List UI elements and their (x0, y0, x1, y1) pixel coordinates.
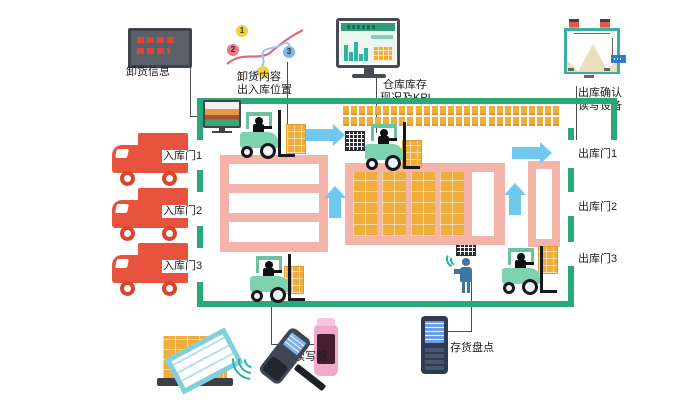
flow-arrow-right-icon (512, 147, 540, 159)
dock-monitor-base (212, 131, 232, 133)
kpi-monitor-icon (336, 18, 400, 68)
kpi-band (371, 35, 393, 39)
dock-monitor-icon (203, 100, 241, 128)
kpi-label-line1: 仓库库存 (383, 79, 427, 92)
forklift-icon (363, 122, 421, 172)
unload-info-label: 卸货信息 (126, 66, 170, 79)
gate-dimension-mark (584, 75, 594, 78)
flow-arrow-right-icon (305, 129, 333, 141)
unload-content-label-line1: 卸货内容 (237, 71, 281, 84)
warehouse-wall-left (197, 170, 203, 192)
shelf-rack-right (528, 161, 560, 247)
map-pin-1: 1 (236, 25, 248, 37)
stock-count-label: 存货盘点 (450, 342, 494, 355)
flow-arrow-up-icon (329, 198, 341, 218)
map-pin-3: 3 (283, 46, 295, 58)
warehouse-wall-right (568, 266, 574, 307)
forklift-mounted-reader-icon (314, 324, 338, 376)
shelf-rack-left (220, 155, 328, 252)
forklift-icon (500, 246, 558, 296)
worker-person-icon (458, 258, 474, 294)
kpi-pallet-grid (373, 47, 392, 61)
outbound-door-1-label: 出库门1 (578, 148, 617, 161)
kpi-monitor-screen (339, 21, 397, 65)
pallet-storage-group (416, 106, 486, 126)
kpi-bar (364, 48, 368, 61)
kpi-bar (354, 42, 358, 61)
led-text-row (137, 37, 177, 43)
connector-line (447, 331, 472, 332)
kpi-dashboard-header (341, 23, 395, 31)
kpi-bar (349, 52, 353, 61)
gate-dimension-mark (568, 68, 574, 71)
monitor-base (352, 74, 386, 78)
pallet-storage-group (489, 106, 559, 126)
forklift-icon (248, 254, 306, 304)
warehouse-wall-right (568, 216, 574, 242)
warehouse-wall-topright (611, 98, 617, 140)
kpi-bar (359, 54, 363, 61)
warehouse-wall-left (197, 282, 203, 307)
inbound-door-2-label: 入库门2 (162, 205, 203, 218)
shelf-rack-center (345, 163, 505, 245)
led-text-row (137, 48, 170, 54)
outbound-door-3-label: 出库门3 (578, 253, 617, 266)
map-pin-2: 2 (227, 44, 239, 56)
connector-line (190, 68, 191, 116)
forklift-icon (238, 110, 296, 160)
kpi-dashboard-body (341, 32, 395, 63)
led-display-icon (128, 28, 192, 68)
warehouse-wall-top (197, 98, 617, 104)
inbound-door-3-label: 入库门3 (162, 260, 203, 273)
inbound-door-1-label: 入库门1 (162, 150, 203, 163)
warehouse-rfid-flow-diagram: 卸货信息 1 2 3 卸货内容 出入库位置 仓库库存 现况及KPI (0, 0, 691, 400)
handheld-terminal-icon (421, 316, 448, 374)
connector-line (576, 86, 577, 140)
floor-grid-icon (345, 131, 365, 151)
gate-dimension-mark (604, 68, 610, 71)
warehouse-wall-right (568, 168, 574, 192)
outbound-door-2-label: 出库门2 (578, 201, 617, 214)
flow-arrow-up-icon (509, 195, 521, 215)
gate-dimension-mark (612, 38, 613, 56)
kpi-bar (344, 45, 348, 61)
gate-dimension-mark (574, 33, 610, 34)
warehouse-wall-left (197, 226, 203, 248)
unload-content-label-line2: 出入库位置 (237, 84, 292, 97)
warehouse-wall-right (568, 128, 574, 140)
gate-badge (611, 55, 626, 63)
